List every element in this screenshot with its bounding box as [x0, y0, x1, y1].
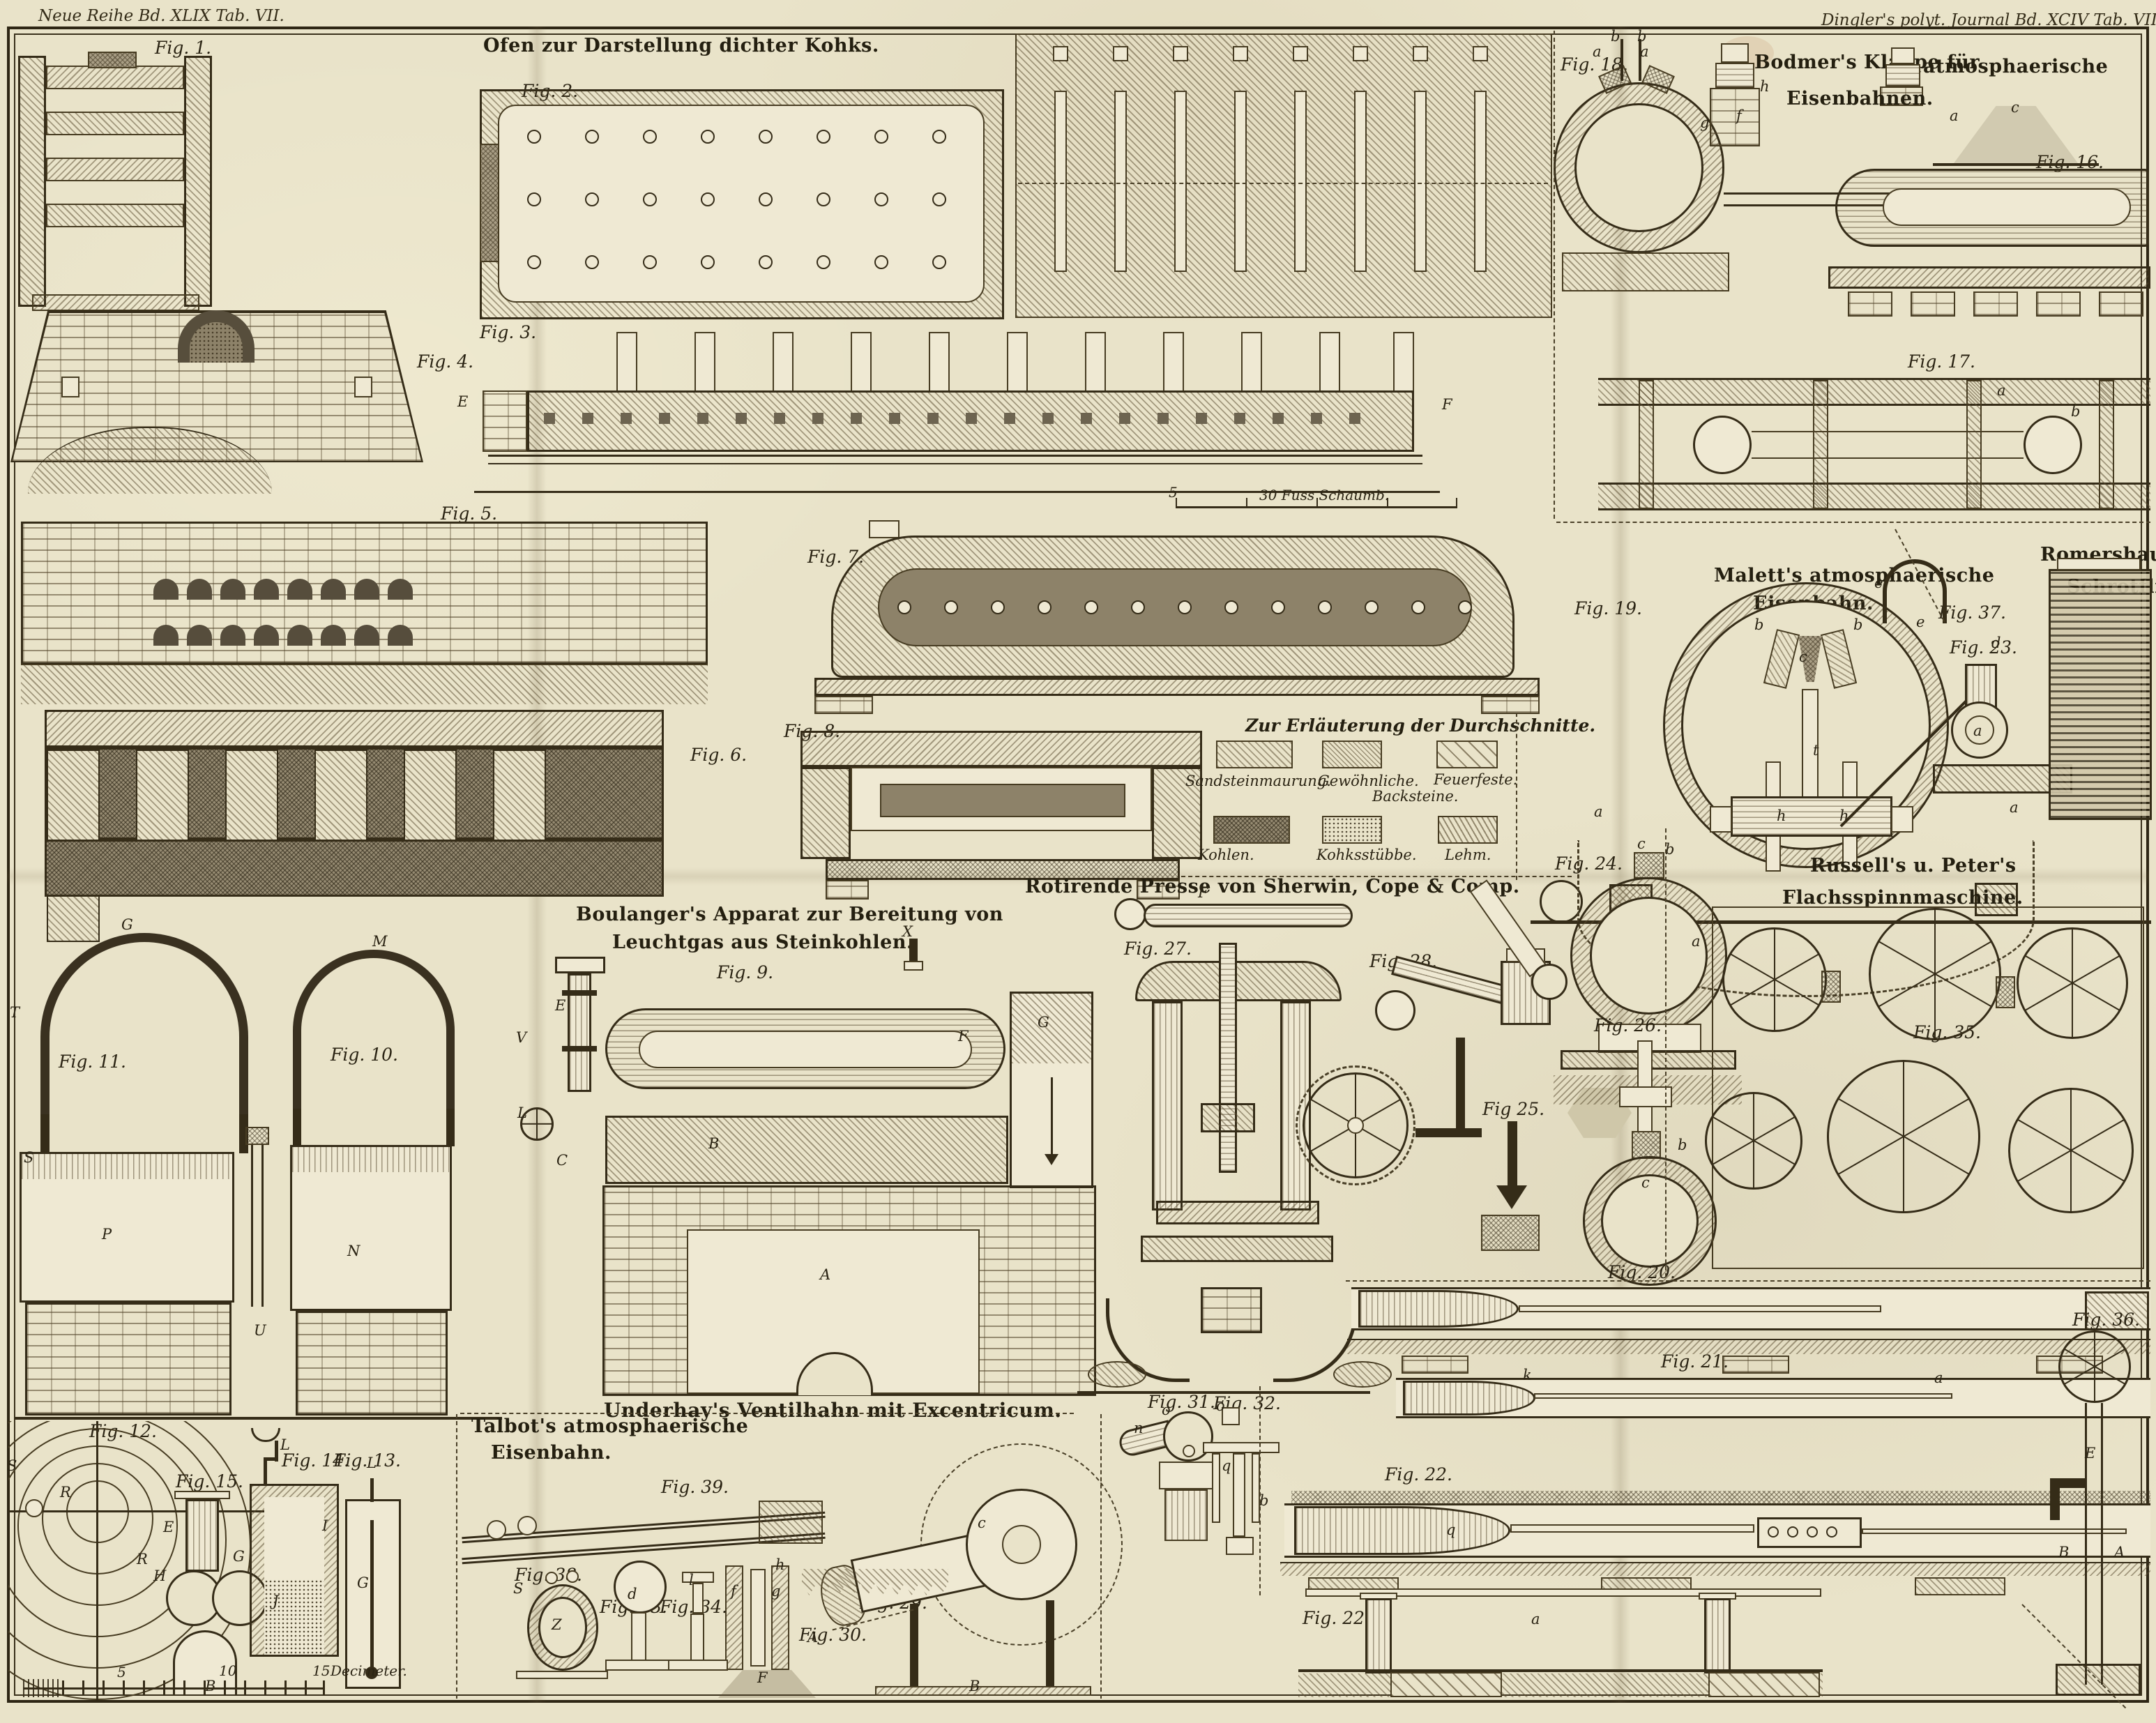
fig-label: Fig. 17.: [1908, 351, 1975, 372]
flue-top-port: [1113, 46, 1128, 61]
valve-fitting: [566, 1570, 579, 1583]
section-title-malett-line1: Malett's atmosphaerische: [1714, 565, 1995, 586]
scale-tick: [1246, 498, 1247, 506]
cross-tie: [2099, 380, 2114, 509]
chimney-top: [1721, 43, 1749, 63]
flue-hole-row: [897, 600, 1472, 617]
flue-top-port: [1173, 46, 1188, 61]
flue-hole: [1365, 600, 1379, 614]
fig-label: Fig. 31.: [1148, 1392, 1215, 1412]
pipe-leg: [446, 1109, 455, 1146]
scale-tick: [163, 1680, 165, 1696]
part-letter: M: [372, 934, 388, 949]
flue-hole: [874, 130, 888, 144]
partition-dash-line: [456, 1414, 457, 1699]
sleeper-block: [2036, 291, 2081, 317]
chimney-stack: [1319, 332, 1340, 392]
part-letter: P: [102, 1227, 112, 1242]
tank-grating: [22, 1154, 231, 1179]
lever-knob: [1114, 898, 1146, 930]
fig-label: Fig. 5.: [441, 503, 497, 524]
roller: [517, 1516, 537, 1535]
fire-port: [1273, 413, 1284, 424]
fire-port: [697, 413, 708, 424]
fuss-scale-line: [1176, 506, 1457, 508]
flue-hole: [1411, 600, 1425, 614]
flue-hole: [897, 600, 911, 614]
part-letter: h: [775, 1558, 785, 1572]
fire-port: [1349, 413, 1360, 424]
oven-arch-opening: [254, 579, 279, 600]
piston-axle: [1731, 796, 1892, 837]
part-letter: b: [1259, 1494, 1268, 1508]
part-letter: G: [233, 1549, 245, 1564]
chimney-stack: [1163, 332, 1184, 392]
roller: [487, 1520, 506, 1540]
scale-tick: [62, 1680, 64, 1696]
fig-label: Fig. 15.: [176, 1471, 243, 1492]
oven-arch-opening: [388, 625, 413, 646]
part-letter: a: [1640, 45, 1649, 59]
fire-port: [774, 413, 785, 424]
valve-sleeve-wall: [725, 1565, 743, 1670]
part-letter: a: [1531, 1612, 1540, 1627]
flue-hole: [527, 255, 541, 269]
battery-base-band: [45, 840, 664, 897]
oven-pier: [404, 750, 457, 844]
part-letter: h: [1777, 809, 1786, 823]
base-rail: [1828, 266, 2150, 289]
part-letter: d: [1991, 636, 2001, 651]
sleeper-block: [1911, 291, 1955, 317]
legend-swatch-backsteine: [1322, 741, 1382, 768]
fire-port: [1234, 413, 1245, 424]
partition-dash-line: [1100, 1414, 1102, 1699]
flue-hole: [1084, 600, 1098, 614]
arm-eye: [1375, 990, 1415, 1031]
part-letter: C: [556, 1153, 568, 1168]
scale-tick: [82, 1680, 84, 1696]
oven-mound-body: [831, 536, 1514, 678]
part-letter: L: [517, 1106, 527, 1121]
wall-hook: [354, 377, 372, 397]
section-title-ofen: Ofen zur Darstellung dichter Kohks.: [483, 35, 879, 56]
oven-pier: [47, 750, 100, 844]
flue-hole: [701, 255, 715, 269]
spinning-wheel: [1705, 1092, 1802, 1190]
flue-hole: [759, 255, 773, 269]
rail-band: [1598, 378, 2150, 406]
fig-label: Fig. 26.: [1594, 1015, 1662, 1035]
scale-tick-number: 15: [312, 1662, 330, 1679]
flue-channel: [1054, 91, 1067, 272]
legend-title: Zur Erläuterung der Durchschnitte.: [1245, 715, 1595, 736]
swan-neck-pipe: [1883, 559, 1947, 623]
oven-arch-opening: [354, 625, 379, 646]
sleeper-block: [1402, 1356, 1468, 1374]
flue-top-port: [1413, 46, 1428, 61]
part-letter: g: [771, 1584, 780, 1599]
cross-bar: [1203, 1442, 1280, 1453]
sleeper-block: [1973, 291, 2018, 317]
legend-item-label: Sandsteinmaurung.: [1185, 773, 1331, 789]
scale-tick: [323, 1680, 325, 1696]
oven-side-pier: [184, 56, 212, 307]
fig-label: Fig 25.: [1482, 1099, 1544, 1119]
leather-valve-band: [1291, 1491, 2150, 1503]
drop-tube: [370, 1478, 374, 1502]
fig-label: Fig. 1.: [155, 38, 211, 58]
perforated-plate: [1757, 1517, 1862, 1548]
part-letter: f: [1736, 109, 1742, 123]
flue-top-port: [1233, 46, 1248, 61]
oven-slab: [46, 112, 184, 135]
fire-port: [1119, 413, 1130, 424]
vent-nub: [869, 520, 899, 538]
legend-swatch-sandstein: [1216, 741, 1293, 768]
part-letter: R: [137, 1552, 148, 1567]
chair-web: [631, 1612, 646, 1662]
claw-foot: [1333, 1361, 1392, 1388]
part-letter: b: [1678, 1138, 1687, 1153]
flow-arrow-head: [1045, 1154, 1058, 1165]
part-letter: b: [1853, 618, 1862, 632]
furnace-arch: [796, 1352, 873, 1395]
valve-fitting: [545, 1572, 558, 1584]
part-letter: H: [153, 1569, 166, 1584]
pipe-flange: [562, 1046, 597, 1052]
oven-slab: [46, 204, 184, 227]
flue-hole-row: [527, 255, 946, 272]
part-letter: c: [1641, 1176, 1650, 1190]
pipe-bend: [264, 1457, 267, 1485]
coke-fill: [264, 1579, 324, 1655]
chimney-stack: [1085, 332, 1106, 392]
arch-row: [153, 625, 421, 648]
bolt-shank: [692, 1583, 704, 1614]
pipe-leg: [40, 1114, 50, 1153]
part-letter: b: [2071, 404, 2080, 419]
hanging-weight: [1821, 971, 1841, 1003]
part-letter: c: [1799, 650, 1807, 665]
chimney-stack: [1241, 332, 1262, 392]
part-letter: E: [555, 999, 565, 1013]
rail-band: [488, 455, 1422, 464]
foot-block: [814, 696, 873, 714]
piston-rod: [1519, 1305, 1881, 1312]
barrel-cap: [2057, 558, 2141, 570]
section-title-rotirende: Rotirende Presse von Sherwin, Cope & Com…: [1025, 876, 1520, 897]
fire-port: [1157, 413, 1169, 424]
chair-base: [605, 1660, 669, 1671]
vessel-body: [250, 1484, 339, 1657]
fig-label: Fig. 3.: [480, 322, 536, 342]
fire-port: [1311, 413, 1322, 424]
oven-arch-opening: [254, 625, 279, 646]
section-title-bodmer-line2: atmosphaerische: [1923, 56, 2108, 77]
tube-piston: [1294, 1506, 1510, 1555]
wall-hook: [61, 377, 79, 397]
part-letter: e: [1916, 615, 1925, 630]
section-dash-line: [1018, 183, 1548, 184]
section-title-talbot-line1: Talbot's atmosphaerische: [471, 1415, 748, 1437]
part-letter: a: [1594, 805, 1603, 819]
oven-arch-opening: [388, 579, 413, 600]
fig-label: Fig. 39.: [661, 1477, 729, 1497]
fig-label: Fig. 19.: [1574, 598, 1642, 618]
piston-rod: [1534, 1393, 1952, 1399]
column: [185, 1499, 219, 1572]
ring-mount: [1562, 252, 1729, 291]
flue-hole: [944, 600, 958, 614]
fire-port-row: [544, 413, 1388, 427]
flue-hole: [1318, 600, 1332, 614]
chimney-top: [1891, 47, 1915, 64]
pipe-leg: [293, 1109, 301, 1146]
chimney-stack: [773, 332, 794, 392]
fire-port: [812, 413, 823, 424]
part-letter: n: [1134, 1421, 1144, 1436]
ground-line: [14, 1417, 502, 1420]
fig-label: Fig. 27.: [1124, 939, 1192, 959]
press-bed: [1141, 1236, 1333, 1262]
legend-swatch-lehm: [1438, 816, 1498, 844]
fire-port: [544, 413, 555, 424]
press-platen: [1156, 1201, 1319, 1224]
part-letter: c: [1637, 837, 1646, 851]
washer-tank: [20, 1152, 234, 1303]
legend-item-label: Kohlen.: [1198, 847, 1254, 863]
flue-hole: [932, 255, 946, 269]
buried-block: [1390, 1672, 1502, 1697]
legend-swatch-kohlen: [1213, 816, 1290, 844]
part-letter: a: [1950, 109, 1959, 123]
axle-cap: [1891, 806, 1913, 833]
link-eye: [1540, 880, 1583, 923]
partition-dash-line: [1181, 876, 1572, 877]
valve-block: [1159, 1462, 1215, 1489]
rail-chair-head: [614, 1561, 667, 1614]
part-letter: J: [273, 1594, 278, 1609]
part-letter: L: [280, 1438, 290, 1452]
oven-pier: [225, 750, 278, 844]
scale-tick: [284, 1680, 287, 1696]
flue-channel: [1114, 91, 1127, 272]
part-letter: E: [2085, 1446, 2095, 1461]
fig-label: Fig. 21.: [1661, 1351, 1729, 1372]
funnel-cup: [245, 1127, 269, 1145]
engraving-plate-page: Neue Reihe Bd. XLIX Tab. VII. Dingler's …: [0, 0, 2156, 1723]
screw-stem: [909, 939, 918, 964]
part-letter: B: [205, 1679, 215, 1694]
foot-block: [1481, 696, 1540, 714]
flue-channel: [1294, 91, 1307, 272]
condenser-box: [1010, 992, 1093, 1188]
part-letter: F: [1442, 397, 1452, 412]
flue-hole: [817, 255, 830, 269]
part-letter: a: [2010, 800, 2019, 815]
part-letter: B: [969, 1679, 980, 1694]
rail-support: [759, 1501, 823, 1544]
press-lever-bar: [1144, 904, 1353, 927]
bracket-step: [2050, 1478, 2060, 1520]
valve-column: [1164, 1489, 1208, 1541]
pediment-base-line: [1933, 163, 2099, 166]
flue-hole: [643, 192, 657, 206]
base-plate: [516, 1671, 608, 1679]
flue-channel: [1354, 91, 1367, 272]
fire-port: [621, 413, 632, 424]
oven-side-pier: [18, 56, 46, 307]
part-letter: B: [708, 1137, 719, 1151]
gauge-tube: [370, 1520, 374, 1668]
sleeper-block: [1848, 291, 1892, 317]
foot-block: [826, 880, 869, 900]
flue-hole: [643, 255, 657, 269]
scale-tick: [244, 1680, 246, 1696]
slot-clamp: [1632, 1131, 1661, 1159]
flue-hole: [585, 130, 599, 144]
part-letter: q: [1222, 1459, 1231, 1473]
scale-tick: [123, 1680, 125, 1696]
scale-tick: [264, 1680, 266, 1696]
press-column: [1152, 1001, 1183, 1210]
chimney-stack: [929, 332, 950, 392]
flue-hole: [874, 255, 888, 269]
part-letter: b: [1754, 618, 1763, 632]
masonry-slab: [605, 1116, 1008, 1184]
spinning-wheel: [1869, 908, 2001, 1040]
partition-dash-line: [1346, 1280, 2150, 1282]
flue-hole: [1458, 600, 1472, 614]
chimney-stack: [616, 332, 637, 392]
scale-tick-number: 5: [117, 1664, 126, 1680]
part-letter: g: [1700, 116, 1709, 130]
partition-dash-line: [1516, 713, 1517, 880]
part-letter: S: [24, 1151, 33, 1165]
sleeper-block: [2099, 291, 2143, 317]
section-title-talbot-line2: Eisenbahn.: [491, 1442, 612, 1464]
part-letter: V: [516, 1031, 526, 1045]
fuss-scale-label: 30 Fuss Schaumb.: [1259, 487, 1389, 503]
chair-web: [690, 1614, 704, 1661]
part-letter: R: [60, 1485, 71, 1500]
air-cylinder-core: [1883, 188, 2131, 226]
flue-hole: [527, 130, 541, 144]
stem-foot: [1226, 1537, 1254, 1555]
fig-label: Fig. 30.: [799, 1625, 867, 1645]
chimney-stack: [851, 332, 872, 392]
rail-hatch-band: [1280, 1562, 2150, 1576]
part-letter: q: [1446, 1523, 1455, 1538]
part-letter: L: [367, 1456, 377, 1471]
part-letter: b: [1637, 29, 1646, 44]
link-eye: [1531, 964, 1567, 1000]
battery-fill-band: [45, 747, 664, 840]
coupling-disc: [2024, 416, 2082, 474]
scale-tick: [224, 1680, 226, 1696]
scale-tick: [143, 1680, 145, 1696]
claw-foot: [1088, 1361, 1146, 1388]
tube-ring-bore: [1601, 1174, 1699, 1268]
fig-label: Fig. 37.: [1938, 602, 2006, 623]
part-letter: t: [1813, 743, 1819, 758]
screw-nut: [1201, 1103, 1255, 1132]
chimney-base: [1710, 88, 1760, 146]
legend-swatch-feuerfeste: [1436, 741, 1498, 768]
valve-fitting: [555, 957, 605, 973]
part-letter: o: [1216, 1399, 1225, 1413]
legend-item-label: Lehm.: [1445, 847, 1491, 863]
valve-seat-block: [1481, 1215, 1540, 1251]
valve-stem: [1620, 39, 1623, 81]
spinning-wheel: [1827, 1060, 1980, 1213]
oven-arch-opening: [153, 625, 179, 646]
fig-label: Fig. 9.: [717, 962, 773, 982]
charge-band: [880, 784, 1125, 817]
oven-plan-port: [480, 144, 499, 262]
flue-hole: [1178, 600, 1192, 614]
valve-axle-hole: [1002, 1525, 1041, 1564]
oven-arch-opening: [354, 579, 379, 600]
part-letter: d: [628, 1587, 637, 1602]
support-post: [1046, 1600, 1054, 1687]
cross-tie: [1639, 380, 1654, 509]
battery-top-slab: [45, 710, 664, 747]
section-title-russell-line1: Russell's u. Peter's: [1810, 855, 2017, 876]
vessel-interior: [264, 1497, 324, 1655]
column-flange: [174, 1491, 230, 1499]
fig-label: Fig. 23.: [1950, 637, 2017, 658]
flue-channel: [1174, 91, 1187, 272]
flue-hole: [701, 130, 715, 144]
tube-piston: [1358, 1290, 1519, 1328]
sleeper-block: [1722, 1356, 1789, 1374]
part-letter: X: [902, 925, 913, 939]
piston-rod: [1510, 1524, 1754, 1533]
oven-pier: [314, 750, 367, 844]
part-letter: U: [254, 1323, 266, 1338]
part-letter: a: [1997, 384, 2006, 398]
part-letter: S: [7, 1459, 17, 1473]
part-letter: F: [958, 1029, 969, 1044]
oven-pier: [136, 750, 189, 844]
part-letter: c: [978, 1516, 986, 1531]
ground-band: [21, 664, 708, 704]
fire-port: [1081, 413, 1092, 424]
flue-hole: [585, 192, 599, 206]
rail-band: [1598, 483, 2150, 510]
chimney-mid: [1715, 63, 1754, 88]
guide-bar: [1212, 1453, 1220, 1523]
oven-slab: [46, 66, 184, 89]
fire-port: [659, 413, 670, 424]
oven-arch-opening: [287, 625, 312, 646]
chimney-stack: [1007, 332, 1028, 392]
slot-clamp: [1634, 852, 1664, 879]
partition-dash-line: [460, 1413, 1074, 1414]
fire-port: [851, 413, 862, 424]
oven-pier: [493, 750, 546, 844]
partition-dash-line: [1665, 828, 1667, 1277]
valve-sleeve-wall: [771, 1565, 789, 1670]
part-letter: F: [757, 1671, 768, 1685]
scale-unit-label: Decimeter.: [331, 1662, 407, 1679]
arch-row: [153, 579, 421, 602]
part-letter: S: [513, 1581, 523, 1596]
fire-port: [889, 413, 900, 424]
part-letter: a: [1593, 45, 1602, 59]
